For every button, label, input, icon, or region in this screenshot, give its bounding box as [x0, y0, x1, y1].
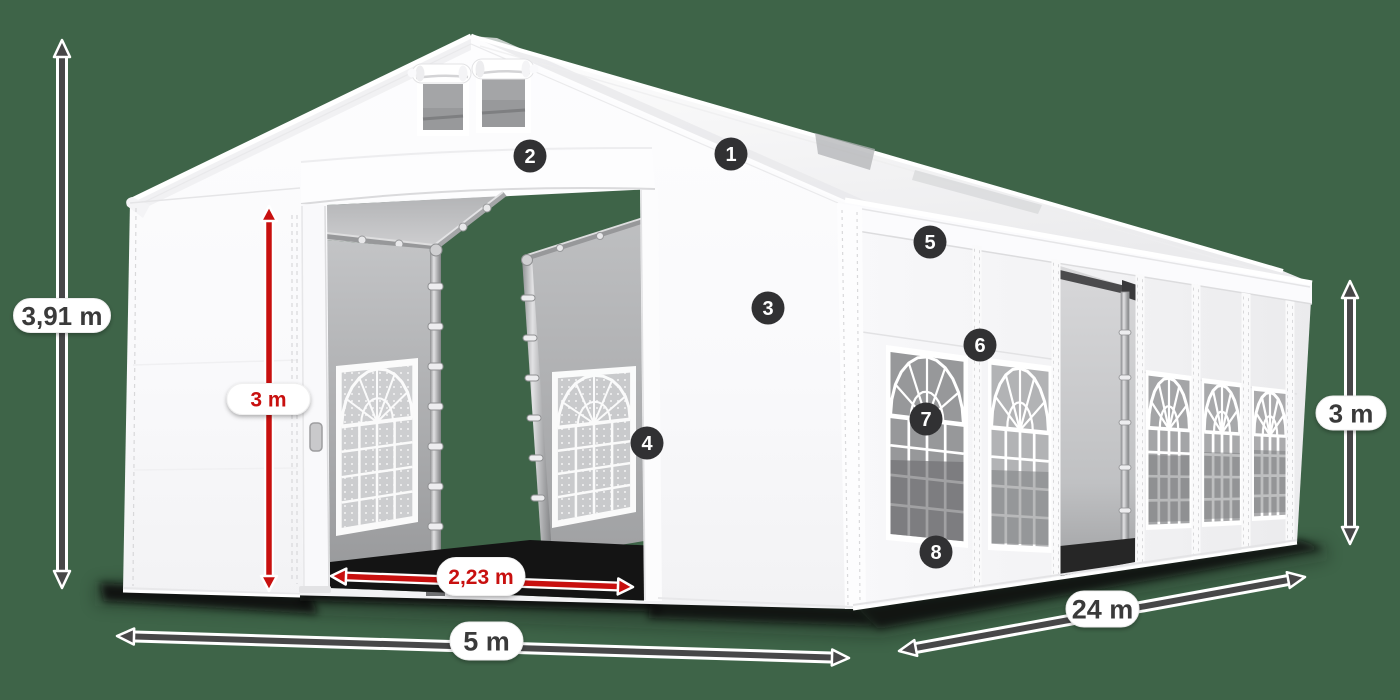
svg-text:7: 7: [920, 409, 931, 431]
svg-text:3: 3: [762, 298, 773, 320]
svg-text:1: 1: [725, 144, 736, 166]
svg-text:2,23 m: 2,23 m: [448, 566, 513, 589]
svg-text:8: 8: [930, 542, 941, 564]
svg-text:2: 2: [524, 146, 535, 168]
svg-text:5 m: 5 m: [463, 627, 510, 657]
svg-text:3,91 m: 3,91 m: [22, 301, 103, 331]
svg-text:5: 5: [924, 232, 935, 254]
svg-text:3 m: 3 m: [250, 389, 286, 412]
svg-text:6: 6: [974, 335, 985, 357]
svg-text:24 m: 24 m: [1072, 595, 1134, 625]
svg-text:4: 4: [641, 433, 653, 455]
svg-text:3 m: 3 m: [1329, 398, 1374, 428]
